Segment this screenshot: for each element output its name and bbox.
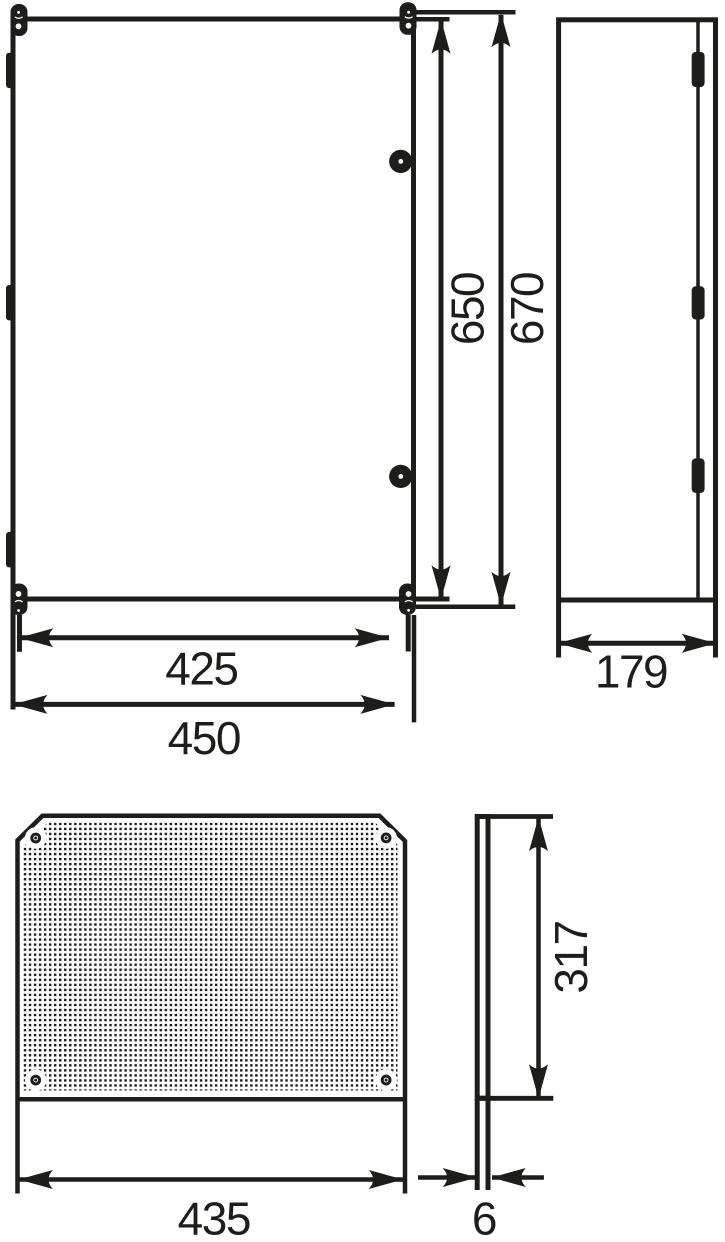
svg-text:6: 6 <box>472 1193 496 1242</box>
svg-text:425: 425 <box>165 643 237 695</box>
svg-text:435: 435 <box>178 1193 250 1242</box>
svg-text:179: 179 <box>595 646 667 698</box>
svg-text:317: 317 <box>545 921 597 993</box>
svg-text:670: 670 <box>501 273 553 345</box>
svg-text:450: 450 <box>168 712 240 764</box>
svg-text:650: 650 <box>442 273 494 345</box>
